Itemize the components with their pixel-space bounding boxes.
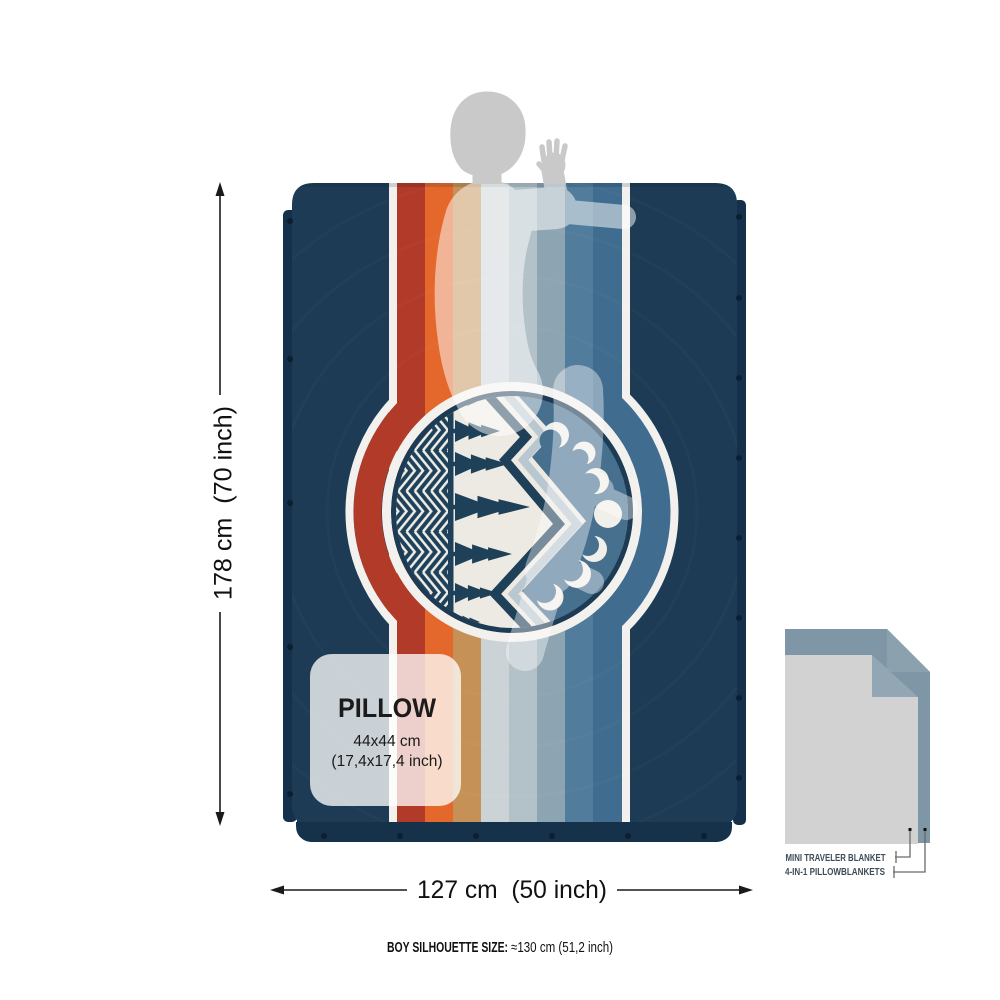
svg-text:≈130 cm (51,2 inch): ≈130 cm (51,2 inch) [511, 940, 613, 956]
svg-text:178 cm (70 inch): 178 cm (70 inch) [210, 406, 238, 600]
svg-text:MINI TRAVELER BLANKET: MINI TRAVELER BLANKET [786, 853, 886, 864]
svg-text:BOY SILHOUETTE SIZE:: BOY SILHOUETTE SIZE: [387, 940, 508, 956]
svg-text:4-IN-1 PILLOWBLANKETS: 4-IN-1 PILLOWBLANKETS [785, 867, 885, 878]
svg-text:PILLOW: PILLOW [338, 693, 436, 723]
svg-text:127 cm (50 inch): 127 cm (50 inch) [417, 876, 607, 904]
svg-text:(17,4x17,4 inch): (17,4x17,4 inch) [331, 753, 442, 770]
svg-text:44x44 cm: 44x44 cm [353, 733, 420, 750]
